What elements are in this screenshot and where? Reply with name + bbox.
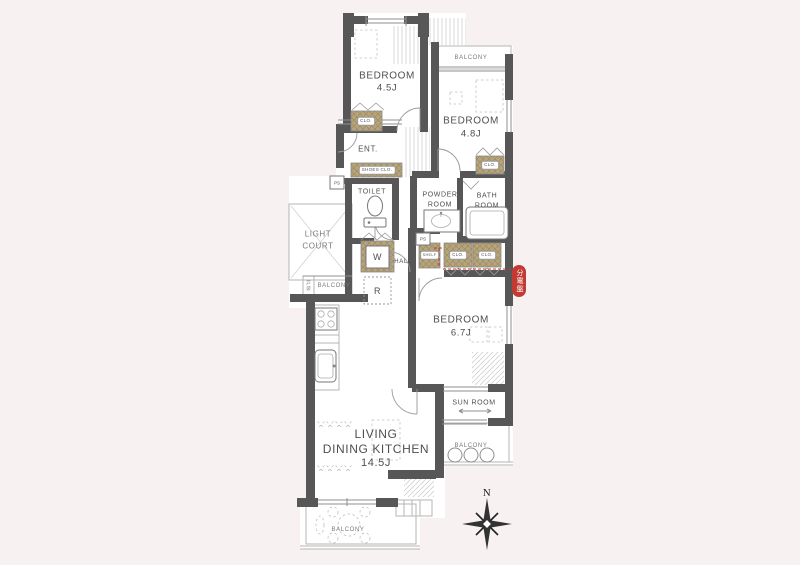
room-label-balcony-left: BALCONY (318, 283, 351, 289)
room-label-powder-line1: POWDER (422, 192, 457, 199)
compass-rose (462, 498, 512, 550)
closet-label-bedroom-top: CLO. (357, 117, 375, 126)
room-label-lightcourt-line1: LIGHT (305, 230, 332, 239)
room-size-ldk: 14.5J (361, 457, 391, 469)
refrigerator-label: R (374, 286, 381, 296)
kitchen-sink-icon (315, 350, 336, 382)
floorplan-graphics (0, 0, 800, 565)
pipe-space-label-2: PS (420, 237, 426, 242)
room-label-balcony-top: BALCONY (455, 55, 488, 61)
room-label-hall: HALL (394, 259, 411, 265)
washer-label: W (373, 252, 382, 262)
room-label-bath-line1: BATH (477, 193, 498, 200)
closet-label-hall-1: CLO. (449, 251, 467, 260)
shelf-label: SHELF (420, 251, 440, 260)
room-label-ldk-line1: LIVING (355, 427, 398, 441)
room-size-bedroom-middle: 6.7J (451, 328, 471, 339)
room-label-balcony-right: BALCONY (455, 443, 488, 449)
shutter-box-label: 戸袋 (306, 281, 312, 292)
room-label-balcony-bottom: BALCONY (332, 527, 365, 533)
pipe-space-label-1: PS (334, 180, 340, 185)
compass-north-label: N (483, 487, 492, 499)
room-label-ldk-line2: DINING KITCHEN (323, 442, 429, 456)
room-label-entrance: ENT. (358, 145, 378, 154)
room-label-bedroom-right: BEDROOM (443, 116, 499, 127)
room-size-bedroom-top: 4.5J (377, 83, 397, 94)
room-label-bedroom-top: BEDROOM (359, 71, 415, 82)
powder-sink-icon (424, 210, 460, 232)
floorplan-page: BEDROOM 4.5J BEDROOM 4.8J BEDROOM 6.7J L… (0, 0, 800, 565)
room-label-toilet: TOILET (358, 189, 386, 196)
room-label-sunroom: SUN ROOM (452, 400, 495, 407)
bathtub-icon (466, 207, 508, 239)
closet-label-hall-2: CLO. (478, 251, 496, 260)
room-size-bedroom-right: 4.8J (461, 129, 481, 140)
shoes-closet-label: SHOES CLO. (359, 166, 396, 175)
stove-icon (315, 308, 337, 330)
room-label-powder-line2: ROOM (428, 202, 452, 209)
room-label-bedroom-middle: BEDROOM (433, 315, 489, 326)
room-label-lightcourt-line2: COURT (302, 242, 333, 251)
floor-areas (289, 13, 513, 549)
distribution-board-badge: 分電盤 (512, 265, 526, 297)
closet-label-bedroom-right: CLO. (481, 161, 499, 170)
room-label-bath-line2: ROOM (475, 203, 499, 210)
